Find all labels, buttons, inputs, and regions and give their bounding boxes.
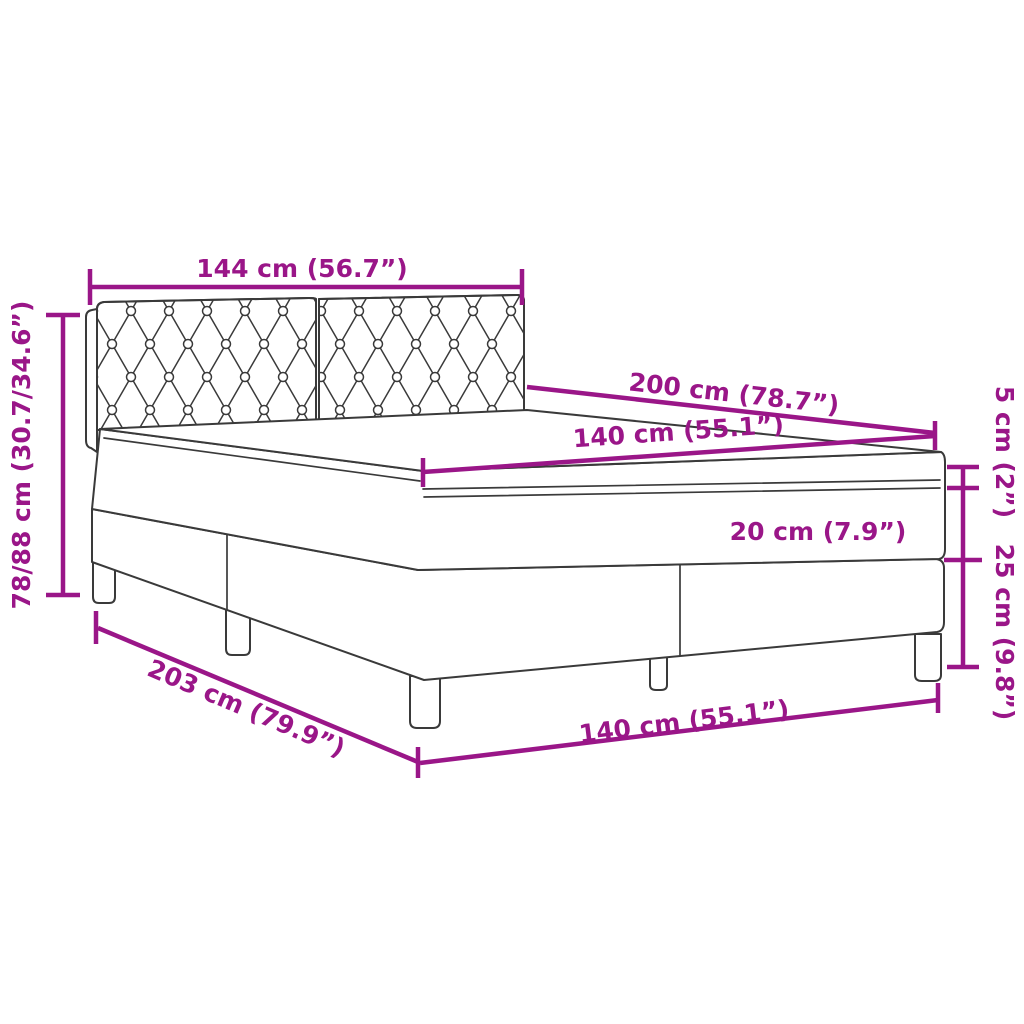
- label-bed-width: 140 cm (55.1”): [577, 694, 790, 749]
- bed-dimension-diagram: 144 cm (56.7”) 200 cm (78.7”) 140 cm (55…: [0, 0, 1024, 1024]
- bed-line-art: [86, 295, 945, 728]
- label-headboard-height: 78/88 cm (30.7/34.6”): [7, 301, 36, 610]
- label-topper-height: 5 cm (2”): [990, 386, 1019, 518]
- leg-front-corner: [410, 676, 440, 728]
- label-total-length: 203 cm (79.9”): [143, 654, 349, 763]
- headboard-side-strip: [86, 309, 97, 452]
- dim-headboard-height: [46, 315, 80, 595]
- diagram-canvas: 144 cm (56.7”) 200 cm (78.7”) 140 cm (55…: [0, 0, 1024, 1024]
- leg-foot-right: [915, 634, 941, 681]
- headboard-left-panel-tufting: [97, 298, 316, 430]
- dim-right-heights: [944, 467, 982, 667]
- label-headboard-width: 144 cm (56.7”): [196, 254, 407, 283]
- label-base-height: 25 cm (9.8”): [990, 544, 1019, 721]
- label-mattress-height: 20 cm (7.9”): [730, 517, 907, 546]
- headboard-right-panel-tufting: [319, 295, 524, 421]
